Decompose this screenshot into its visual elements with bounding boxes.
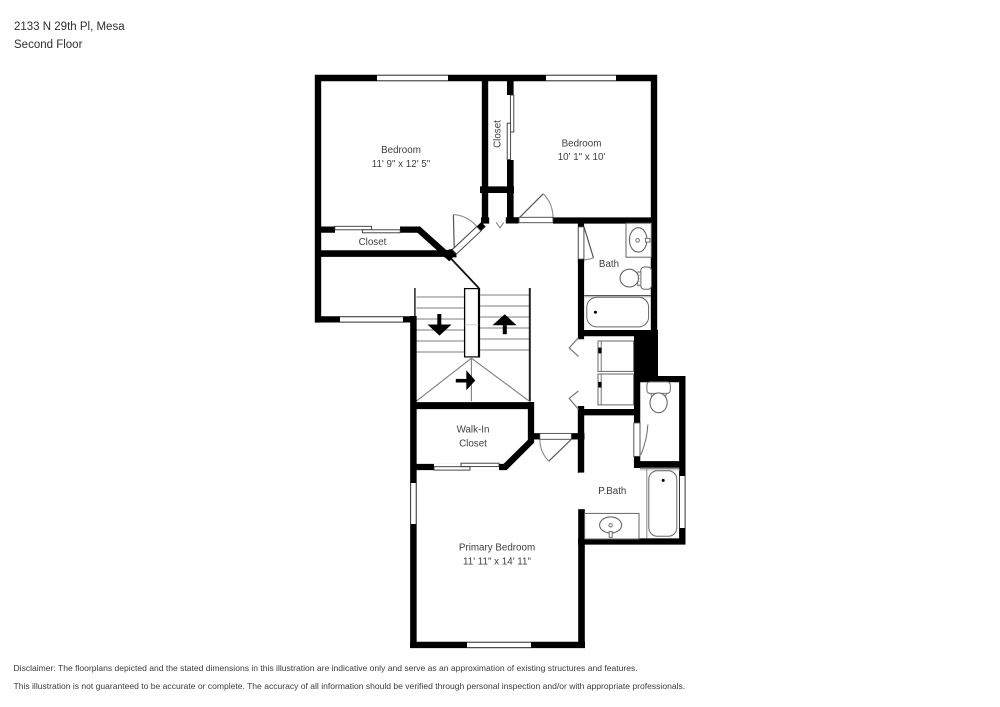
svg-text:Closet: Closet <box>359 237 387 248</box>
svg-text:Bath: Bath <box>599 259 619 270</box>
svg-text:Bedroom: Bedroom <box>562 139 602 150</box>
svg-text:Primary Bedroom: Primary Bedroom <box>459 543 535 554</box>
svg-text:Walk-In: Walk-In <box>457 425 490 436</box>
svg-text:Bedroom: Bedroom <box>381 145 421 156</box>
svg-text:P.Bath: P.Bath <box>598 486 626 497</box>
svg-text:Closet: Closet <box>492 120 503 148</box>
svg-text:11' 11" x 14' 11": 11' 11" x 14' 11" <box>463 557 531 568</box>
svg-text:11' 9" x 12' 5": 11' 9" x 12' 5" <box>372 159 431 170</box>
svg-text:10' 1" x 10': 10' 1" x 10' <box>558 152 606 163</box>
svg-text:Closet: Closet <box>459 439 487 450</box>
